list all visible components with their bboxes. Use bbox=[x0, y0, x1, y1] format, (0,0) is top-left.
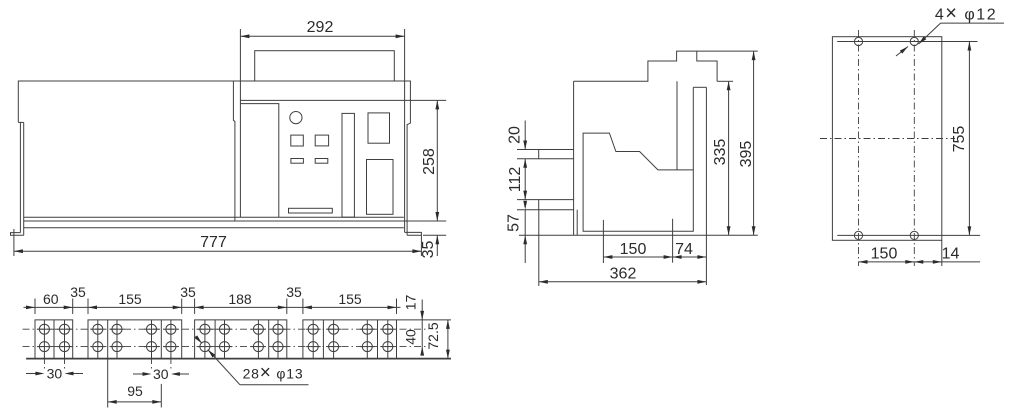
svg-text:150: 150 bbox=[620, 241, 647, 258]
svg-text:395: 395 bbox=[738, 141, 755, 168]
svg-text:112: 112 bbox=[507, 167, 524, 193]
svg-text:35: 35 bbox=[286, 284, 302, 300]
svg-text:258: 258 bbox=[421, 148, 438, 175]
svg-text:74: 74 bbox=[675, 241, 693, 258]
svg-text:35: 35 bbox=[180, 284, 196, 300]
svg-text:14: 14 bbox=[942, 245, 960, 262]
svg-text:17: 17 bbox=[402, 295, 418, 311]
svg-text:35: 35 bbox=[420, 241, 437, 259]
svg-text:155: 155 bbox=[118, 291, 142, 307]
svg-text:335: 335 bbox=[712, 139, 729, 166]
svg-text:362: 362 bbox=[610, 265, 637, 282]
svg-text:292: 292 bbox=[307, 19, 334, 36]
svg-text:40: 40 bbox=[402, 329, 418, 345]
svg-text:95: 95 bbox=[127, 383, 143, 399]
svg-text:35: 35 bbox=[70, 284, 86, 300]
svg-text:4× φ12: 4× φ12 bbox=[935, 3, 997, 25]
svg-text:755: 755 bbox=[951, 126, 968, 153]
svg-text:30: 30 bbox=[153, 366, 169, 382]
svg-text:30: 30 bbox=[47, 365, 63, 381]
svg-text:188: 188 bbox=[228, 291, 252, 307]
svg-text:150: 150 bbox=[871, 245, 898, 262]
svg-text:155: 155 bbox=[338, 291, 362, 307]
svg-text:20: 20 bbox=[507, 126, 524, 144]
svg-text:60: 60 bbox=[43, 291, 59, 307]
svg-text:57: 57 bbox=[506, 214, 523, 232]
svg-text:28× φ13: 28× φ13 bbox=[243, 363, 304, 384]
svg-text:777: 777 bbox=[200, 234, 227, 251]
svg-text:72.5: 72.5 bbox=[425, 322, 441, 349]
